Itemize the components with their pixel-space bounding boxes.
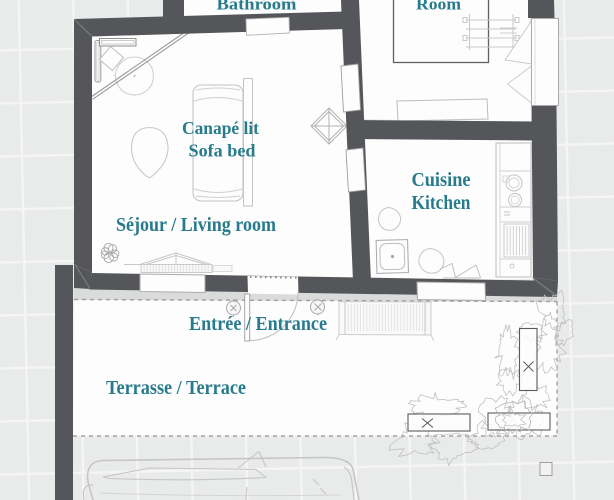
- svg-text:Canapé lit: Canapé lit: [182, 118, 259, 138]
- svg-text:Sofa bed: Sofa bed: [189, 141, 256, 161]
- svg-text:Entrée / Entrance: Entrée / Entrance: [189, 313, 327, 335]
- svg-text:Kitchen: Kitchen: [412, 192, 471, 214]
- svg-text:Terrasse / Terrace: Terrasse / Terrace: [106, 377, 246, 399]
- svg-text:Séjour / Living room: Séjour / Living room: [116, 214, 276, 236]
- svg-text:Bathroom: Bathroom: [217, 0, 297, 14]
- svg-text:Cuisine: Cuisine: [412, 169, 471, 191]
- svg-text:Room: Room: [416, 0, 461, 14]
